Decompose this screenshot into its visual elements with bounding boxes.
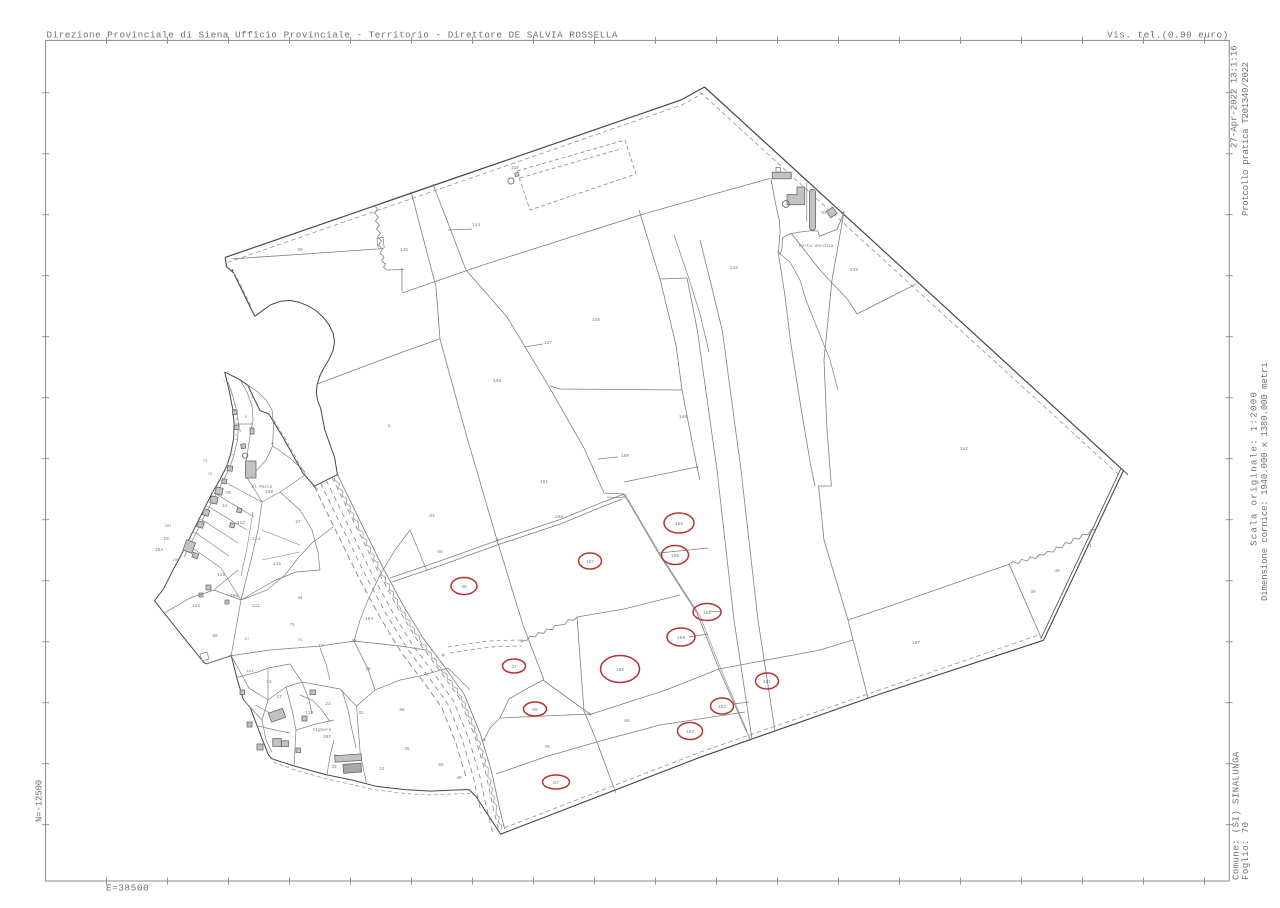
svg-text:137: 137 [912,641,920,646]
svg-text:142: 142 [960,447,968,452]
svg-text:115: 115 [273,562,281,567]
svg-text:Direzione Provinciale di Siena: Direzione Provinciale di Siena Ufficio P… [47,29,618,40]
svg-text:157: 157 [586,559,594,565]
svg-text:58: 58 [437,550,443,555]
svg-text:104: 104 [365,617,373,622]
svg-text:Il Parco: Il Parco [252,485,273,490]
svg-text:121: 121 [247,670,255,674]
svg-text:210: 210 [511,167,519,171]
svg-text:75: 75 [289,623,295,628]
svg-text:17: 17 [318,644,324,649]
svg-text:76: 76 [544,745,550,750]
svg-text:145: 145 [400,248,408,253]
svg-text:i: i [231,449,233,453]
svg-text:39: 39 [297,248,303,253]
svg-text:68: 68 [624,719,630,724]
svg-text:66: 66 [532,707,538,713]
svg-text:1: 1 [388,424,391,429]
svg-text:161: 161 [763,679,771,685]
svg-text:13: 13 [266,680,272,685]
svg-text:57: 57 [245,638,250,642]
svg-text:Dimensione cornice: 1940.000 x: Dimensione cornice: 1940.000 x 1380.000 … [1260,362,1270,601]
svg-text:41: 41 [1086,544,1092,549]
svg-text:159: 159 [677,635,685,641]
svg-text:23: 23 [325,702,331,707]
svg-text:47: 47 [511,664,517,670]
svg-text:56: 56 [212,634,218,639]
svg-text:158: 158 [703,610,711,616]
svg-text:E=38500: E=38500 [106,883,149,894]
svg-text:65: 65 [438,763,444,768]
svg-text:20: 20 [351,639,357,644]
svg-text:110: 110 [217,573,225,578]
svg-text:151: 151 [540,480,548,485]
svg-text:27: 27 [276,695,282,700]
svg-text:203: 203 [323,736,331,740]
svg-text:46: 46 [461,584,467,590]
svg-text:148: 148 [493,379,501,384]
svg-text:124: 124 [192,604,200,609]
svg-text:7: 7 [361,574,363,578]
svg-text:39: 39 [1030,590,1036,595]
svg-text:112: 112 [252,604,260,609]
svg-text:155: 155 [675,521,683,527]
svg-text:143: 143 [730,266,738,271]
svg-text:a: a [236,417,238,421]
svg-text:139: 139 [850,268,858,273]
svg-text:Foglio: 70: Foglio: 70 [1241,821,1251,880]
svg-text:86: 86 [399,708,405,713]
svg-text:d: d [235,433,237,437]
svg-text:35: 35 [404,747,410,752]
svg-text:53: 53 [821,212,827,216]
svg-text:150: 150 [621,454,629,459]
svg-text:24: 24 [379,767,385,772]
svg-text:6: 6 [271,442,274,447]
svg-text:31: 31 [358,711,364,716]
svg-text:163: 163 [686,729,694,735]
svg-text:160: 160 [616,667,624,673]
svg-text:109: 109 [265,490,273,495]
svg-text:10: 10 [163,537,169,542]
svg-text:i: i [234,403,236,407]
svg-text:27: 27 [295,520,301,525]
svg-text:144: 144 [472,223,480,228]
svg-text:106: 106 [173,559,181,563]
svg-text:44: 44 [297,596,303,601]
svg-text:Porta Vecchia: Porta Vecchia [799,244,834,249]
svg-text:114: 114 [252,537,260,542]
svg-text:248: 248 [555,515,563,520]
svg-text:49: 49 [456,776,462,781]
svg-text:V: V [230,389,232,393]
svg-text:Protcollo pratica T201349/2022: Protcollo pratica T201349/2022 [1241,62,1251,216]
svg-text:67: 67 [553,780,559,786]
svg-text:70: 70 [225,491,231,496]
svg-text:119: 119 [305,711,313,716]
svg-text:156: 156 [671,553,679,559]
svg-text:52: 52 [622,494,628,499]
svg-text:308: 308 [230,594,238,599]
svg-text:11: 11 [222,504,228,509]
svg-text:162: 162 [718,704,726,710]
svg-text:72: 72 [208,473,213,477]
svg-text:63: 63 [429,514,435,519]
svg-text:73: 73 [203,460,208,464]
svg-text:40: 40 [1054,569,1060,574]
svg-text:Comune: (SI) SINALUNGA: Comune: (SI) SINALUNGA [1232,751,1242,880]
svg-text:N=-12500: N=-12500 [35,780,45,822]
svg-text:10A: 10A [155,548,163,553]
svg-text:27-Apr-2022 13:1:16: 27-Apr-2022 13:1:16 [1230,45,1240,148]
svg-text:107: 107 [165,525,172,529]
svg-text:149: 149 [679,415,687,420]
svg-text:113: 113 [237,521,245,526]
svg-text:146: 146 [592,318,600,323]
svg-text:Vignere: Vignere [313,728,332,733]
svg-text:147: 147 [544,341,552,346]
svg-text:Vis. tel.(0.90 euro): Vis. tel.(0.90 euro) [1107,29,1229,40]
svg-text:75: 75 [298,639,303,643]
svg-text:26: 26 [365,667,371,672]
svg-text:33: 33 [331,765,337,770]
svg-text:Scala originale: 1:2000: Scala originale: 1:2000 [1250,391,1260,546]
